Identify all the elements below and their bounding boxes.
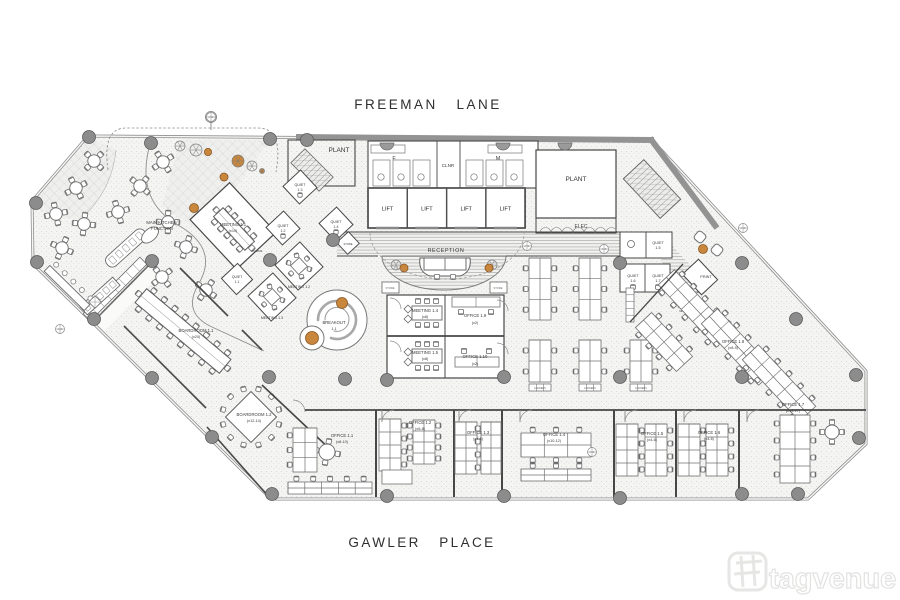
svg-text:OFFICE 1.3: OFFICE 1.3 bbox=[467, 430, 490, 435]
svg-text:OFFICE 1.1: OFFICE 1.1 bbox=[331, 433, 354, 438]
svg-text:1.5: 1.5 bbox=[655, 246, 660, 250]
svg-text:OFFICE 1.4: OFFICE 1.4 bbox=[543, 432, 566, 437]
svg-text:MEETING 1.5: MEETING 1.5 bbox=[412, 350, 439, 355]
svg-text:(x10-12): (x10-12) bbox=[547, 439, 562, 443]
svg-text:QUIET: QUIET bbox=[295, 183, 307, 187]
svg-text:QUIET: QUIET bbox=[627, 274, 639, 278]
svg-text:(x4-6): (x4-6) bbox=[704, 437, 715, 441]
svg-text:LOCKERS: LOCKERS bbox=[534, 387, 546, 390]
svg-text:1.6: 1.6 bbox=[630, 279, 635, 283]
svg-text:LIFT: LIFT bbox=[382, 207, 394, 213]
svg-text:QUIET: QUIET bbox=[331, 220, 343, 224]
svg-text:1.7: 1.7 bbox=[655, 279, 660, 283]
svg-text:2.5E: 2.5E bbox=[209, 116, 214, 119]
svg-text:LOCKERS: LOCKERS bbox=[635, 387, 647, 390]
svg-text:FREEMAN LANE: FREEMAN LANE bbox=[354, 97, 502, 112]
svg-text:1.2: 1.2 bbox=[281, 229, 286, 233]
svg-text:LIFT: LIFT bbox=[421, 207, 433, 213]
svg-text:MEETING 1.4: MEETING 1.4 bbox=[412, 308, 439, 313]
svg-text:MEETING 1.2: MEETING 1.2 bbox=[288, 285, 310, 289]
svg-text:2.5E: 2.5E bbox=[525, 245, 530, 248]
svg-text:MEETING 1.3: MEETING 1.3 bbox=[261, 316, 283, 320]
svg-text:tagvenue: tagvenue bbox=[769, 563, 896, 595]
svg-text:PLANT: PLANT bbox=[329, 147, 350, 154]
svg-text:RECEPTION: RECEPTION bbox=[428, 248, 465, 254]
svg-text:PLANT: PLANT bbox=[566, 176, 587, 183]
svg-text:OFFICE 1.9: OFFICE 1.9 bbox=[464, 313, 487, 318]
svg-text:QUIET: QUIET bbox=[278, 224, 290, 228]
svg-text:(x8-9): (x8-9) bbox=[728, 346, 739, 350]
svg-text:1.4: 1.4 bbox=[334, 225, 339, 229]
svg-text:STORE: STORE bbox=[386, 286, 395, 290]
svg-text:CLNR: CLNR bbox=[442, 163, 455, 168]
svg-text:(x6-8): (x6-8) bbox=[415, 427, 426, 431]
svg-text:(x8-10): (x8-10) bbox=[336, 440, 349, 444]
svg-text:(x13-17): (x13-17) bbox=[786, 409, 801, 413]
svg-text:(x2): (x2) bbox=[472, 321, 479, 325]
svg-text:OFFICE 1.10: OFFICE 1.10 bbox=[463, 354, 488, 359]
svg-text:2.5E: 2.5E bbox=[741, 227, 746, 230]
svg-text:1.1: 1.1 bbox=[331, 327, 336, 331]
svg-text:1.1: 1.1 bbox=[235, 280, 240, 284]
svg-text:QUIET: QUIET bbox=[652, 241, 664, 245]
svg-text:STORE: STORE bbox=[344, 242, 353, 246]
svg-text:BOARDROOM 1.2: BOARDROOM 1.2 bbox=[237, 412, 273, 417]
svg-text:LIFT: LIFT bbox=[500, 207, 512, 213]
svg-text:MAIN KITCHEN/: MAIN KITCHEN/ bbox=[146, 220, 178, 225]
svg-text:(x20): (x20) bbox=[192, 335, 201, 339]
svg-text:GAWLER PLACE: GAWLER PLACE bbox=[348, 535, 495, 550]
svg-text:OFFICE 1.8: OFFICE 1.8 bbox=[722, 339, 745, 344]
svg-text:FUNCTION: FUNCTION bbox=[151, 226, 173, 231]
svg-text:LOCKERS: LOCKERS bbox=[584, 387, 596, 390]
svg-text:OFFICE 1.2: OFFICE 1.2 bbox=[409, 420, 432, 425]
svg-text:1.3: 1.3 bbox=[298, 188, 303, 192]
svg-text:(x8): (x8) bbox=[422, 357, 429, 361]
svg-text:BREAKOUT: BREAKOUT bbox=[322, 320, 345, 325]
svg-text:OFFICE 1.6: OFFICE 1.6 bbox=[698, 430, 721, 435]
svg-text:(x4-6): (x4-6) bbox=[647, 438, 658, 442]
svg-text:(x10): (x10) bbox=[229, 229, 238, 233]
svg-text:M: M bbox=[496, 156, 501, 162]
svg-text:COMMS: COMMS bbox=[252, 249, 263, 253]
svg-text:STORE: STORE bbox=[494, 286, 503, 290]
svg-text:(x8): (x8) bbox=[422, 315, 429, 319]
svg-text:2.5E: 2.5E bbox=[602, 248, 607, 251]
svg-text:2.5E: 2.5E bbox=[58, 328, 63, 331]
svg-text:PRINT: PRINT bbox=[700, 275, 712, 279]
svg-text:OFFICE 1.5: OFFICE 1.5 bbox=[641, 431, 664, 436]
svg-text:2.5E: 2.5E bbox=[590, 451, 595, 454]
svg-text:(x12-14): (x12-14) bbox=[247, 419, 262, 423]
svg-text:OFFICE 1.7: OFFICE 1.7 bbox=[782, 402, 805, 407]
svg-text:(x4-6): (x4-6) bbox=[473, 437, 484, 441]
svg-text:LIFT: LIFT bbox=[460, 207, 472, 213]
svg-text:QUIET: QUIET bbox=[232, 275, 242, 279]
svg-text:(x2): (x2) bbox=[472, 362, 479, 366]
svg-text:MEETING 1.1: MEETING 1.1 bbox=[220, 222, 247, 227]
svg-text:QUIET: QUIET bbox=[652, 274, 664, 278]
svg-text:BOARDROOM 1.1: BOARDROOM 1.1 bbox=[179, 328, 215, 333]
